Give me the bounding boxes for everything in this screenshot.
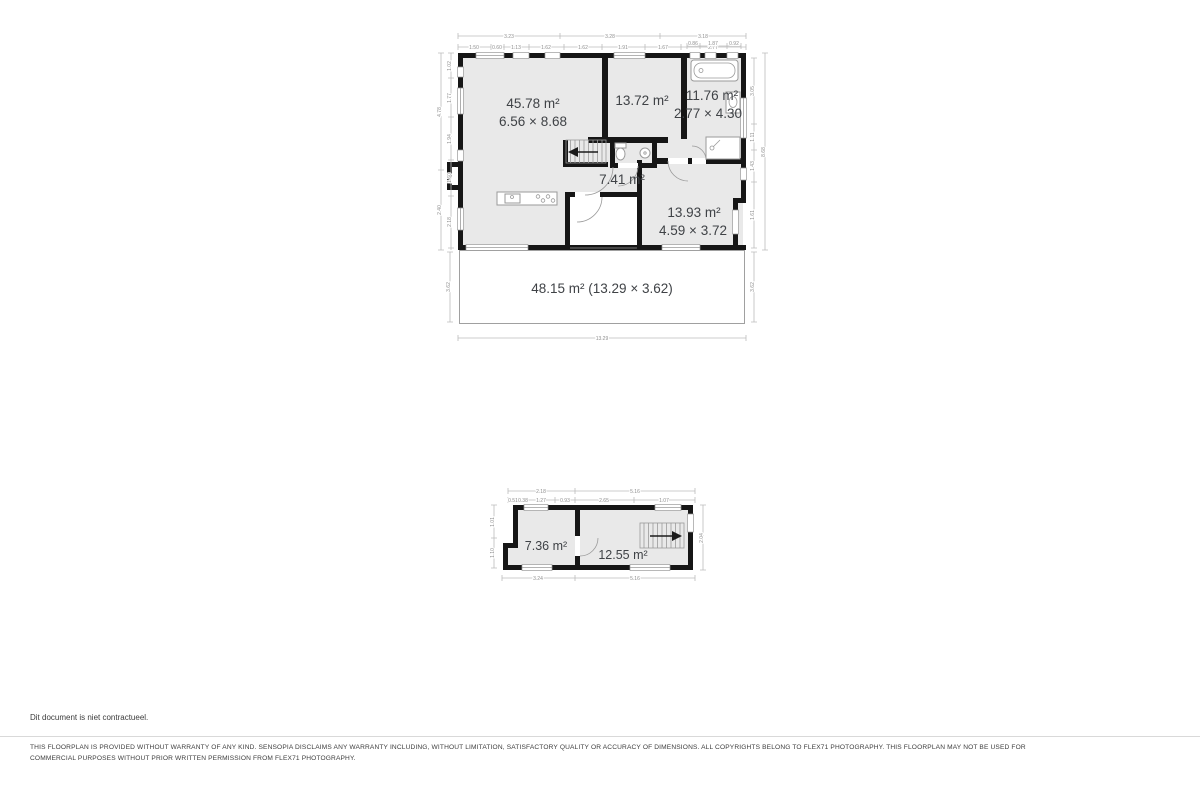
dim-label: 1.62 xyxy=(541,45,551,51)
contract-note: Dit document is niet contractueel. xyxy=(30,713,148,722)
dim-label: 2.18 xyxy=(536,489,546,495)
dim-label: 8.68 xyxy=(761,147,767,157)
dim-label: 1.61 xyxy=(750,210,756,220)
dim-label: 2.04 xyxy=(699,533,705,543)
room-right-area-label: 13.93 m² xyxy=(667,205,721,220)
bathtub-icon xyxy=(691,60,738,81)
dim-label: 2.65 xyxy=(599,498,609,504)
living-dims-label: 6.56 × 8.68 xyxy=(499,114,567,129)
dim-label: 3.24 xyxy=(533,576,543,582)
kitchen-counter-icon xyxy=(497,192,557,205)
dim-label: 3.23 xyxy=(504,34,514,40)
dim-label: 1.10 xyxy=(490,548,496,558)
dim-label: 1.60 xyxy=(447,173,453,183)
bathroom-dims-label: 2.77 × 4.30 xyxy=(674,106,742,121)
dim-label: 3.28 xyxy=(605,34,615,40)
floorplan-drawing: 48.15 m² (13.29 × 3.62) 45.78 m² 6.56 × … xyxy=(0,0,1200,800)
lower-right-area-label: 12.55 m² xyxy=(598,548,647,562)
toilet-icon xyxy=(615,143,626,160)
living-area-label: 45.78 m² xyxy=(506,96,560,111)
dim-label: 1.43 xyxy=(750,161,756,171)
dim-label: 3.62 xyxy=(750,282,756,292)
dim-label: 3.18 xyxy=(698,34,708,40)
dim-label: 4.78 xyxy=(437,107,443,117)
dim-label: 1.01 xyxy=(490,517,496,527)
room-top-area-label: 13.72 m² xyxy=(615,93,669,108)
sink-icon xyxy=(640,148,650,158)
dim-label: 0.60 xyxy=(492,45,502,51)
room-right-dims-label: 4.59 × 3.72 xyxy=(659,223,727,238)
dim-label: 5.16 xyxy=(630,489,640,495)
dim-label: 1.91 xyxy=(618,45,628,51)
footer-divider xyxy=(0,736,1200,737)
dim-label: 0.93 xyxy=(560,498,570,504)
dim-label: 5.16 xyxy=(630,576,640,582)
shower-icon xyxy=(706,137,740,159)
dim-label: 1.13 xyxy=(511,45,521,51)
dim-label: 0.51 xyxy=(508,498,518,504)
disclaimer-line-2: COMMERCIAL PURPOSES WITHOUT PRIOR WRITTE… xyxy=(30,754,1180,765)
bathroom-area-label: 11.76 m² xyxy=(686,88,739,103)
lower-door-openings xyxy=(575,536,580,556)
lower-left-area-label: 7.36 m² xyxy=(525,539,567,553)
dim-label: 1.50 xyxy=(469,45,479,51)
dim-label: 1.27 xyxy=(536,498,546,504)
dim-label: 1.11 xyxy=(750,132,756,142)
dim-label: 1.67 xyxy=(658,45,668,51)
page: 48.15 m² (13.29 × 3.62) 45.78 m² 6.56 × … xyxy=(0,0,1200,800)
dim-label: 1.62 xyxy=(578,45,588,51)
dim-label: 1.94 xyxy=(447,134,453,144)
dim-label: 2.40 xyxy=(437,205,443,215)
dim-label: 1.77 xyxy=(447,93,453,103)
dim-label: 1.07 xyxy=(659,498,669,504)
dim-label: 0.38 xyxy=(518,498,528,504)
dim-label: 1.02 xyxy=(447,61,453,71)
dim-label: 13.29 xyxy=(596,336,609,342)
dim-label: 1.87 xyxy=(708,41,718,47)
lower-floorplan: 7.36 m² 12.55 m² 2.18 5.16 0.51 0.38 1.2… xyxy=(490,488,706,582)
dim-label: 0.86 xyxy=(688,41,698,47)
disclaimer-text: THIS FLOORPLAN IS PROVIDED WITHOUT WARRA… xyxy=(30,743,1180,764)
dim-label: 2.18 xyxy=(447,217,453,227)
terrace-label: 48.15 m² (13.29 × 3.62) xyxy=(531,281,672,296)
disclaimer-line-1: THIS FLOORPLAN IS PROVIDED WITHOUT WARRA… xyxy=(30,743,1180,754)
terrace: 48.15 m² (13.29 × 3.62) xyxy=(460,251,745,324)
dim-label: 0.92 xyxy=(729,41,739,47)
dim-label: 3.05 xyxy=(750,86,756,96)
hall-area-label: 7.41 m² xyxy=(599,172,645,187)
main-floorplan: 48.15 m² (13.29 × 3.62) 45.78 m² 6.56 × … xyxy=(437,33,768,342)
dim-label: 3.62 xyxy=(446,282,452,292)
